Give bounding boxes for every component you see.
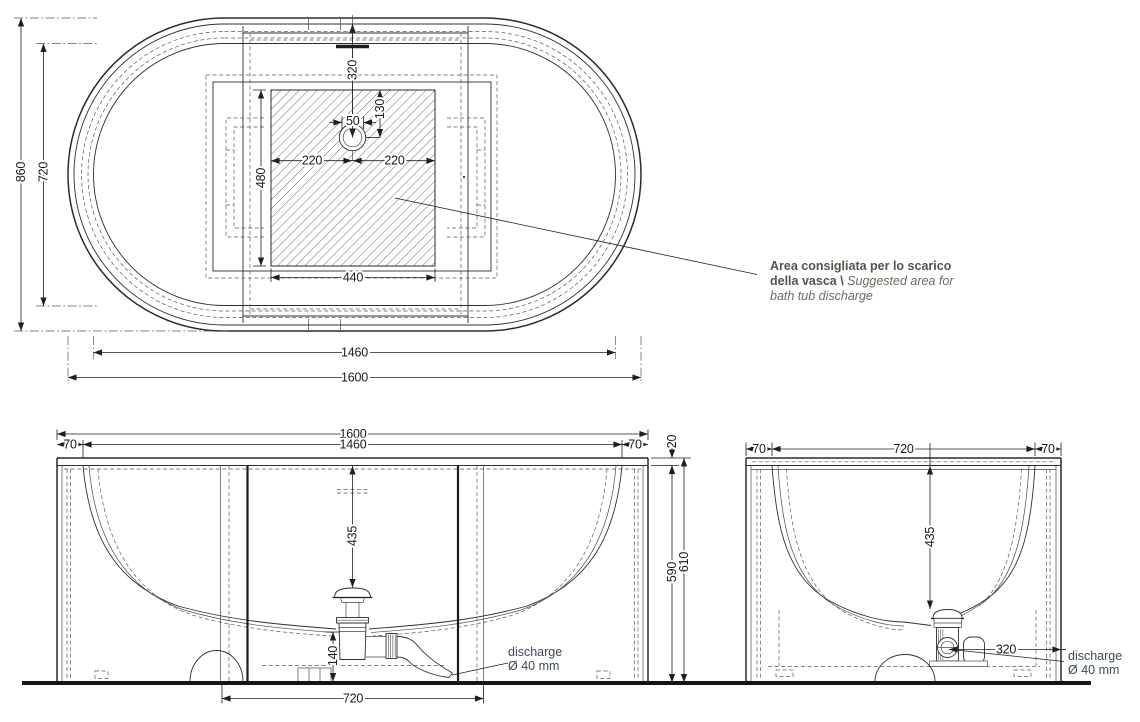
dim-front-rim-thickness: 20 bbox=[651, 435, 691, 476]
dim-label-side-70-right: 70 bbox=[1041, 442, 1055, 456]
dim-label-1600: 1600 bbox=[341, 371, 368, 385]
dim-label-860: 860 bbox=[14, 162, 28, 183]
dim-label-front-140: 140 bbox=[326, 646, 340, 667]
dim-side-rim-to-drain: 435 bbox=[923, 443, 937, 609]
side-rim bbox=[746, 458, 1061, 470]
dim-label-440: 440 bbox=[343, 271, 364, 285]
dim-label-front-720: 720 bbox=[343, 692, 364, 706]
dim-label-220-left: 220 bbox=[302, 154, 323, 168]
dim-label-side-720: 720 bbox=[893, 442, 914, 456]
dim-overall-length: 1600 bbox=[68, 336, 641, 385]
discharge-area-annotation: Area consigliata per lo scarico della va… bbox=[770, 259, 965, 303]
dim-label-480: 480 bbox=[254, 168, 268, 189]
dim-front-overhang-right: 70 bbox=[622, 438, 648, 452]
top-view: 860 720 320 130 50 220 220 bbox=[14, 15, 757, 385]
dim-front-trap-height: 140 bbox=[326, 632, 340, 682]
front-discharge-word: discharge bbox=[508, 646, 562, 660]
dim-area-height: 480 bbox=[253, 90, 268, 266]
dim-side-top: 70 720 70 bbox=[746, 442, 1061, 456]
dim-front-center-panel: 720 bbox=[222, 685, 484, 706]
dim-label-front-70-left: 70 bbox=[63, 438, 77, 452]
dim-front-overhang-left: 70 bbox=[57, 438, 83, 452]
front-faucet-mark bbox=[337, 490, 370, 494]
annotation-italian-line2: della vasca \ bbox=[770, 274, 844, 288]
dim-label-220-right: 220 bbox=[384, 154, 405, 168]
dim-front-rim-to-drain: 435 bbox=[346, 466, 360, 588]
dim-label-1460: 1460 bbox=[341, 346, 368, 360]
technical-drawing-page: 860 720 320 130 50 220 220 bbox=[0, 0, 1140, 722]
front-discharge-label: discharge Ø 40 mm bbox=[508, 646, 562, 674]
front-discharge-size: Ø 40 mm bbox=[508, 660, 562, 674]
dim-front-overall-height: 610 bbox=[677, 458, 691, 683]
dim-label-720: 720 bbox=[37, 162, 51, 183]
dim-label-front-435: 435 bbox=[346, 526, 360, 547]
annotation-italian-line1: Area consigliata per lo scarico bbox=[770, 259, 951, 273]
annotation-leader bbox=[395, 198, 757, 275]
front-discharge-leader bbox=[452, 663, 508, 675]
dim-label-side-70-left: 70 bbox=[752, 442, 766, 456]
side-discharge-size: Ø 40 mm bbox=[1068, 664, 1122, 678]
side-view: 70 720 70 435 320 bbox=[746, 442, 1066, 683]
dim-label-side-435: 435 bbox=[923, 527, 937, 548]
dim-label-front-70-right: 70 bbox=[628, 438, 642, 452]
side-discharge-label: discharge Ø 40 mm bbox=[1068, 650, 1122, 678]
dim-label-50: 50 bbox=[346, 114, 360, 128]
bathtub-technical-drawing: 860 720 320 130 50 220 220 bbox=[0, 0, 1140, 722]
side-base-details bbox=[776, 655, 1031, 682]
front-view: 1600 1460 70 70 20 590 610 bbox=[57, 427, 691, 706]
dim-label-320: 320 bbox=[346, 60, 360, 81]
annotation-english-line2: bath tub discharge bbox=[770, 289, 873, 303]
side-drain-trap bbox=[930, 610, 988, 667]
annotation-english-line1: Suggested area for bbox=[847, 274, 953, 288]
dim-label-130: 130 bbox=[373, 99, 387, 120]
side-discharge-word: discharge bbox=[1068, 650, 1122, 664]
side-bowl-profile bbox=[768, 466, 1040, 667]
dim-label-front-610: 610 bbox=[677, 552, 691, 573]
dim-front-apron-height: 590 bbox=[665, 466, 679, 683]
dim-label-front-1460: 1460 bbox=[339, 438, 366, 452]
dim-front-inner-length: 1460 bbox=[83, 438, 622, 459]
dim-inner-length: 1460 bbox=[94, 336, 616, 360]
ground-line bbox=[22, 681, 1091, 685]
dim-label-front-20: 20 bbox=[665, 435, 679, 449]
